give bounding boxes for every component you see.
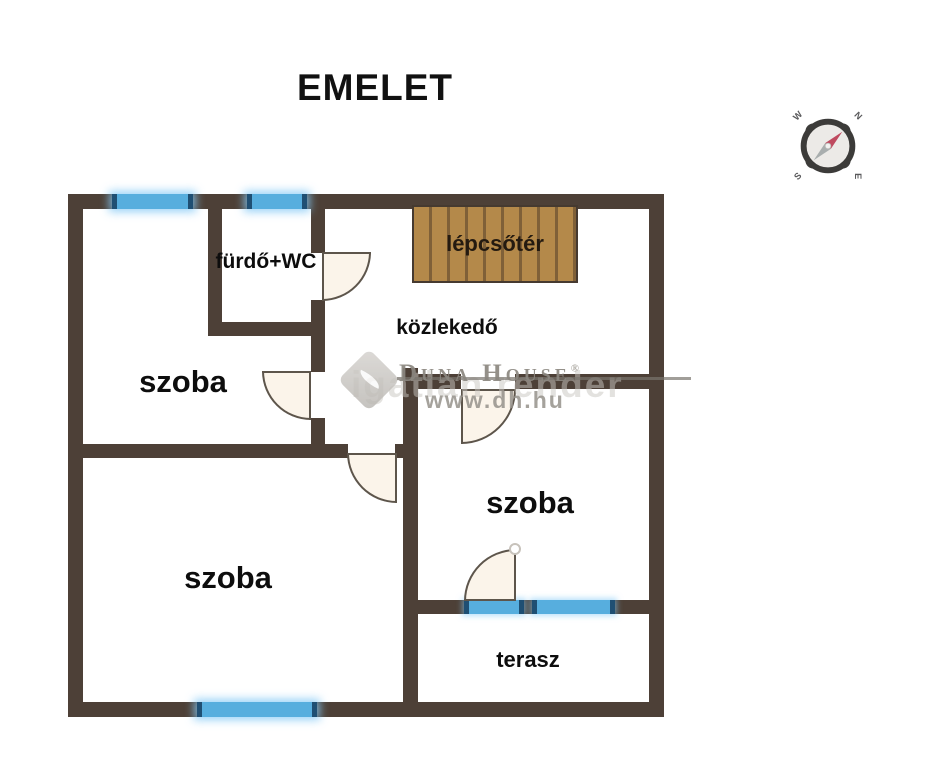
wall-bathroom-right-lower — [311, 300, 325, 372]
wall-outer-bottom — [68, 702, 664, 717]
window-top-left — [112, 194, 193, 209]
compass-label-s: S — [792, 171, 803, 182]
door-hinge-terrace — [509, 543, 521, 555]
wall-room3-top-left — [83, 444, 348, 458]
room-label-room2: szoba — [486, 485, 574, 521]
compass-label-w: W — [791, 109, 804, 122]
room-label-staircase: lépcsőtér — [446, 231, 544, 257]
wall-room2-top-right — [515, 374, 649, 389]
registered-mark: ® — [571, 363, 579, 375]
door-swing-bathroom — [322, 252, 371, 301]
compass-label-n: N — [852, 110, 864, 122]
room-label-bathroom: fürdő+WC — [216, 250, 317, 274]
compass-pivot — [825, 143, 831, 149]
door-swing-room1 — [262, 371, 311, 420]
door-swing-terrace — [464, 549, 516, 601]
watermark-logo-icon — [338, 349, 400, 411]
window-bottom — [197, 702, 317, 717]
window-terrace — [532, 600, 615, 614]
page-title: EMELET — [297, 67, 453, 109]
door-swing-room3 — [347, 453, 397, 503]
wall-bathroom-bottom — [208, 322, 325, 336]
room-label-room3: szoba — [184, 560, 272, 596]
staircase: lépcsőtér — [412, 205, 578, 283]
room-label-hallway: közlekedő — [396, 316, 498, 340]
room-label-room1: szoba — [139, 364, 227, 400]
wall-terrace-top-left — [418, 600, 465, 614]
wall-center-vertical — [403, 368, 418, 702]
floor-plan-canvas: EMELET W N S E lépcsőtér fürd — [0, 0, 929, 768]
compass-label-e: E — [853, 173, 863, 179]
door-swing-room2 — [461, 389, 516, 444]
wall-room2-top-left — [418, 374, 461, 389]
wall-outer-left — [68, 194, 83, 717]
room-label-terrace: terasz — [496, 647, 560, 673]
balcony-door-glazing — [464, 600, 524, 614]
watermark-leaf-icon — [357, 370, 383, 389]
window-top-bathroom — [247, 194, 307, 209]
wall-bathroom-right-upper — [311, 209, 325, 253]
compass-icon: W N S E — [786, 104, 870, 188]
wall-outer-right — [649, 194, 664, 717]
